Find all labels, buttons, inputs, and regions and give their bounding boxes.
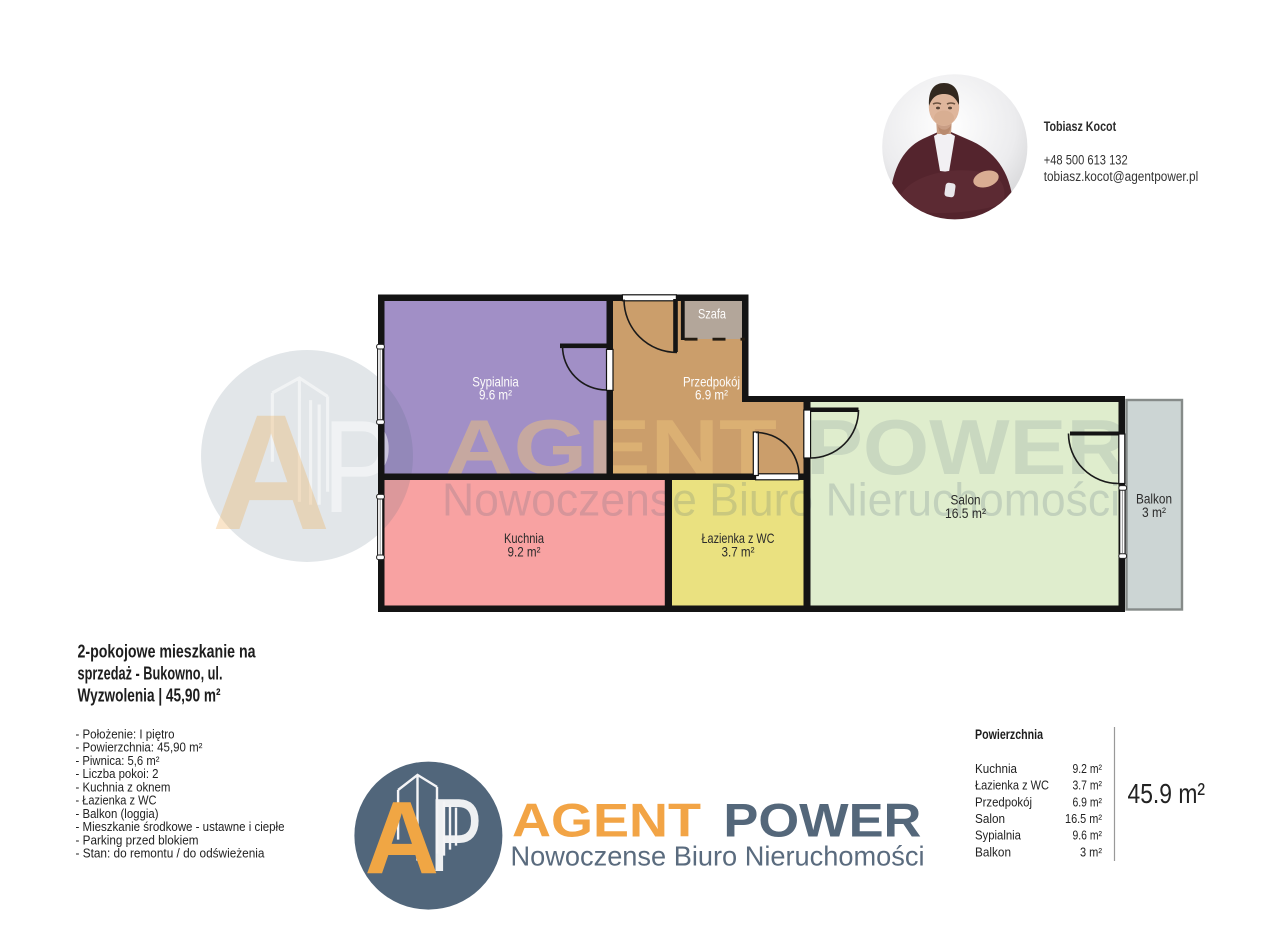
svg-text:- Balkon (loggia): - Balkon (loggia): [76, 807, 159, 821]
svg-text:sprzedaż - Bukowno, ul.: sprzedaż - Bukowno, ul.: [78, 663, 223, 684]
svg-text:Salon: Salon: [975, 811, 1005, 826]
svg-text:Przedpokój: Przedpokój: [975, 794, 1032, 809]
svg-text:tobiasz.kocot@agentpower.pl: tobiasz.kocot@agentpower.pl: [1044, 169, 1199, 184]
svg-text:Łazienka z WC: Łazienka z WC: [975, 778, 1049, 793]
svg-text:3.7 m²: 3.7 m²: [722, 544, 755, 559]
svg-text:9.6 m²: 9.6 m²: [1073, 828, 1103, 843]
svg-text:A: A: [212, 380, 331, 564]
svg-text:Sypialnia: Sypialnia: [975, 828, 1022, 843]
svg-text:POWER: POWER: [723, 794, 921, 847]
svg-text:Szafa: Szafa: [698, 306, 726, 321]
svg-text:Powierzchnia: Powierzchnia: [975, 727, 1043, 742]
svg-text:Nowoczense Biuro Nieruchomości: Nowoczense Biuro Nieruchomości: [511, 841, 925, 872]
svg-text:16.5 m²: 16.5 m²: [945, 506, 986, 521]
svg-text:- Łazienka z WC: - Łazienka z WC: [76, 794, 157, 808]
svg-text:- Liczba pokoi: 2: - Liczba pokoi: 2: [76, 767, 159, 781]
svg-text:+48 500 613 132: +48 500 613 132: [1044, 153, 1128, 168]
svg-text:- Piwnica: 5,6 m²: - Piwnica: 5,6 m²: [76, 754, 160, 768]
svg-text:Wyzwolenia | 45,90 m²: Wyzwolenia | 45,90 m²: [78, 685, 221, 706]
svg-text:Tobiasz Kocot: Tobiasz Kocot: [1044, 118, 1117, 134]
svg-text:Kuchnia: Kuchnia: [975, 761, 1018, 776]
svg-text:- Kuchnia z oknem: - Kuchnia z oknem: [76, 780, 171, 794]
svg-text:- Stan: do remontu / do odświe: - Stan: do remontu / do odświeżenia: [76, 847, 265, 861]
svg-text:3.7 m²: 3.7 m²: [1073, 778, 1103, 793]
svg-text:9.6 m²: 9.6 m²: [479, 388, 512, 403]
svg-text:3 m²: 3 m²: [1080, 844, 1103, 859]
svg-text:16.5 m²: 16.5 m²: [1065, 811, 1102, 826]
svg-text:Nowoczense Biuro Nieruchomości: Nowoczense Biuro Nieruchomości: [442, 474, 1120, 526]
svg-text:6.9 m²: 6.9 m²: [695, 388, 728, 403]
svg-text:- Parking przed blokiem: - Parking przed blokiem: [76, 833, 199, 847]
svg-text:- Położenie: I piętro: - Położenie: I piętro: [76, 727, 175, 741]
svg-text:2-pokojowe mieszkanie na: 2-pokojowe mieszkanie na: [78, 641, 257, 662]
svg-text:- Mieszkanie środkowe - ustawn: - Mieszkanie środkowe - ustawne i ciepłe: [76, 820, 285, 834]
svg-text:- Powierzchnia: 45,90 m²: - Powierzchnia: 45,90 m²: [76, 741, 203, 755]
svg-text:45.9 m²: 45.9 m²: [1128, 778, 1206, 809]
svg-text:9.2 m²: 9.2 m²: [508, 544, 541, 559]
svg-text:Balkon: Balkon: [975, 844, 1011, 859]
svg-text:3 m²: 3 m²: [1142, 505, 1166, 520]
svg-text:6.9 m²: 6.9 m²: [1073, 794, 1103, 809]
svg-text:9.2 m²: 9.2 m²: [1073, 761, 1103, 776]
svg-text:AGENT: AGENT: [512, 794, 701, 847]
